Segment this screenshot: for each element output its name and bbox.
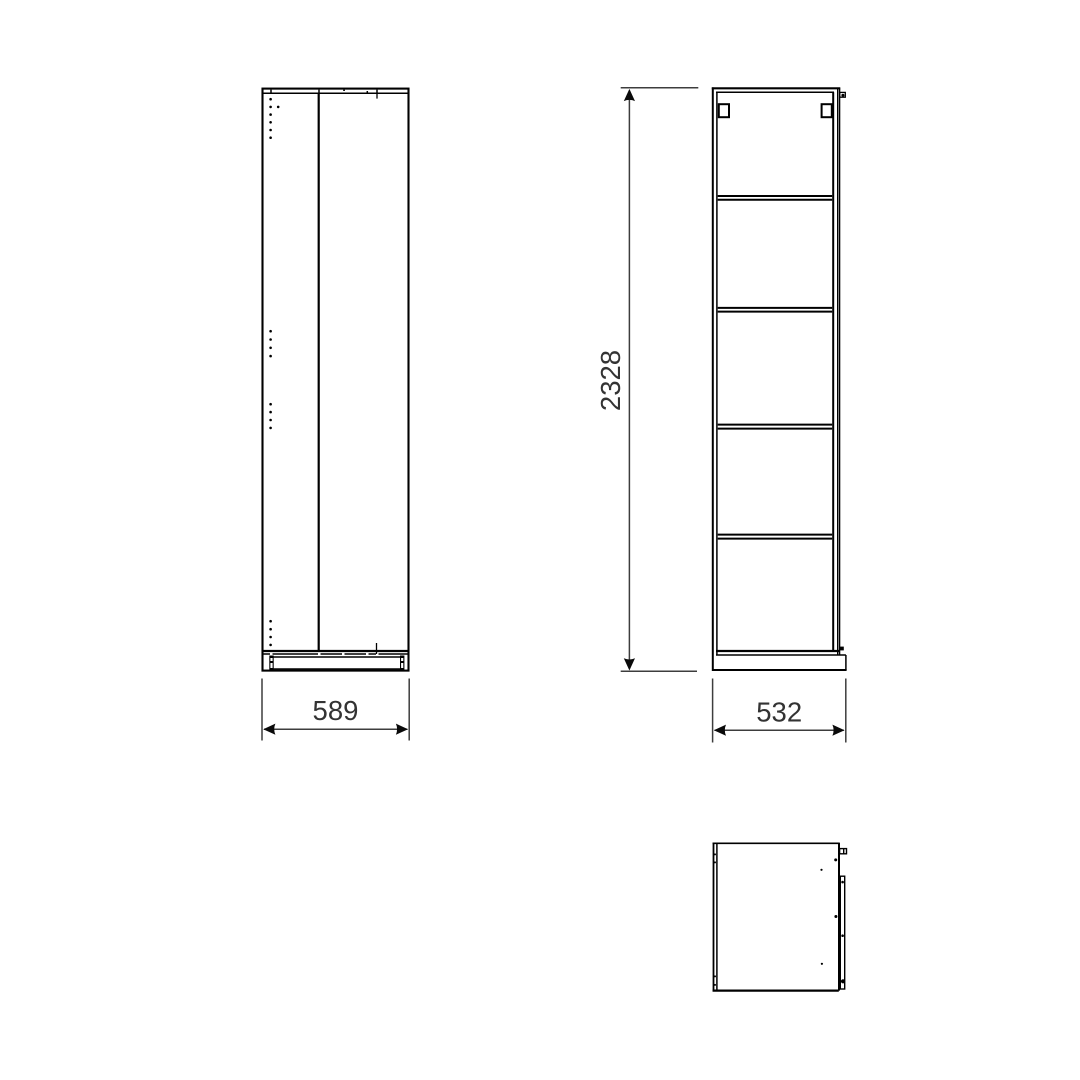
svg-text:589: 589 [313, 695, 359, 726]
svg-text:2328: 2328 [595, 350, 626, 411]
svg-text:532: 532 [756, 697, 802, 728]
